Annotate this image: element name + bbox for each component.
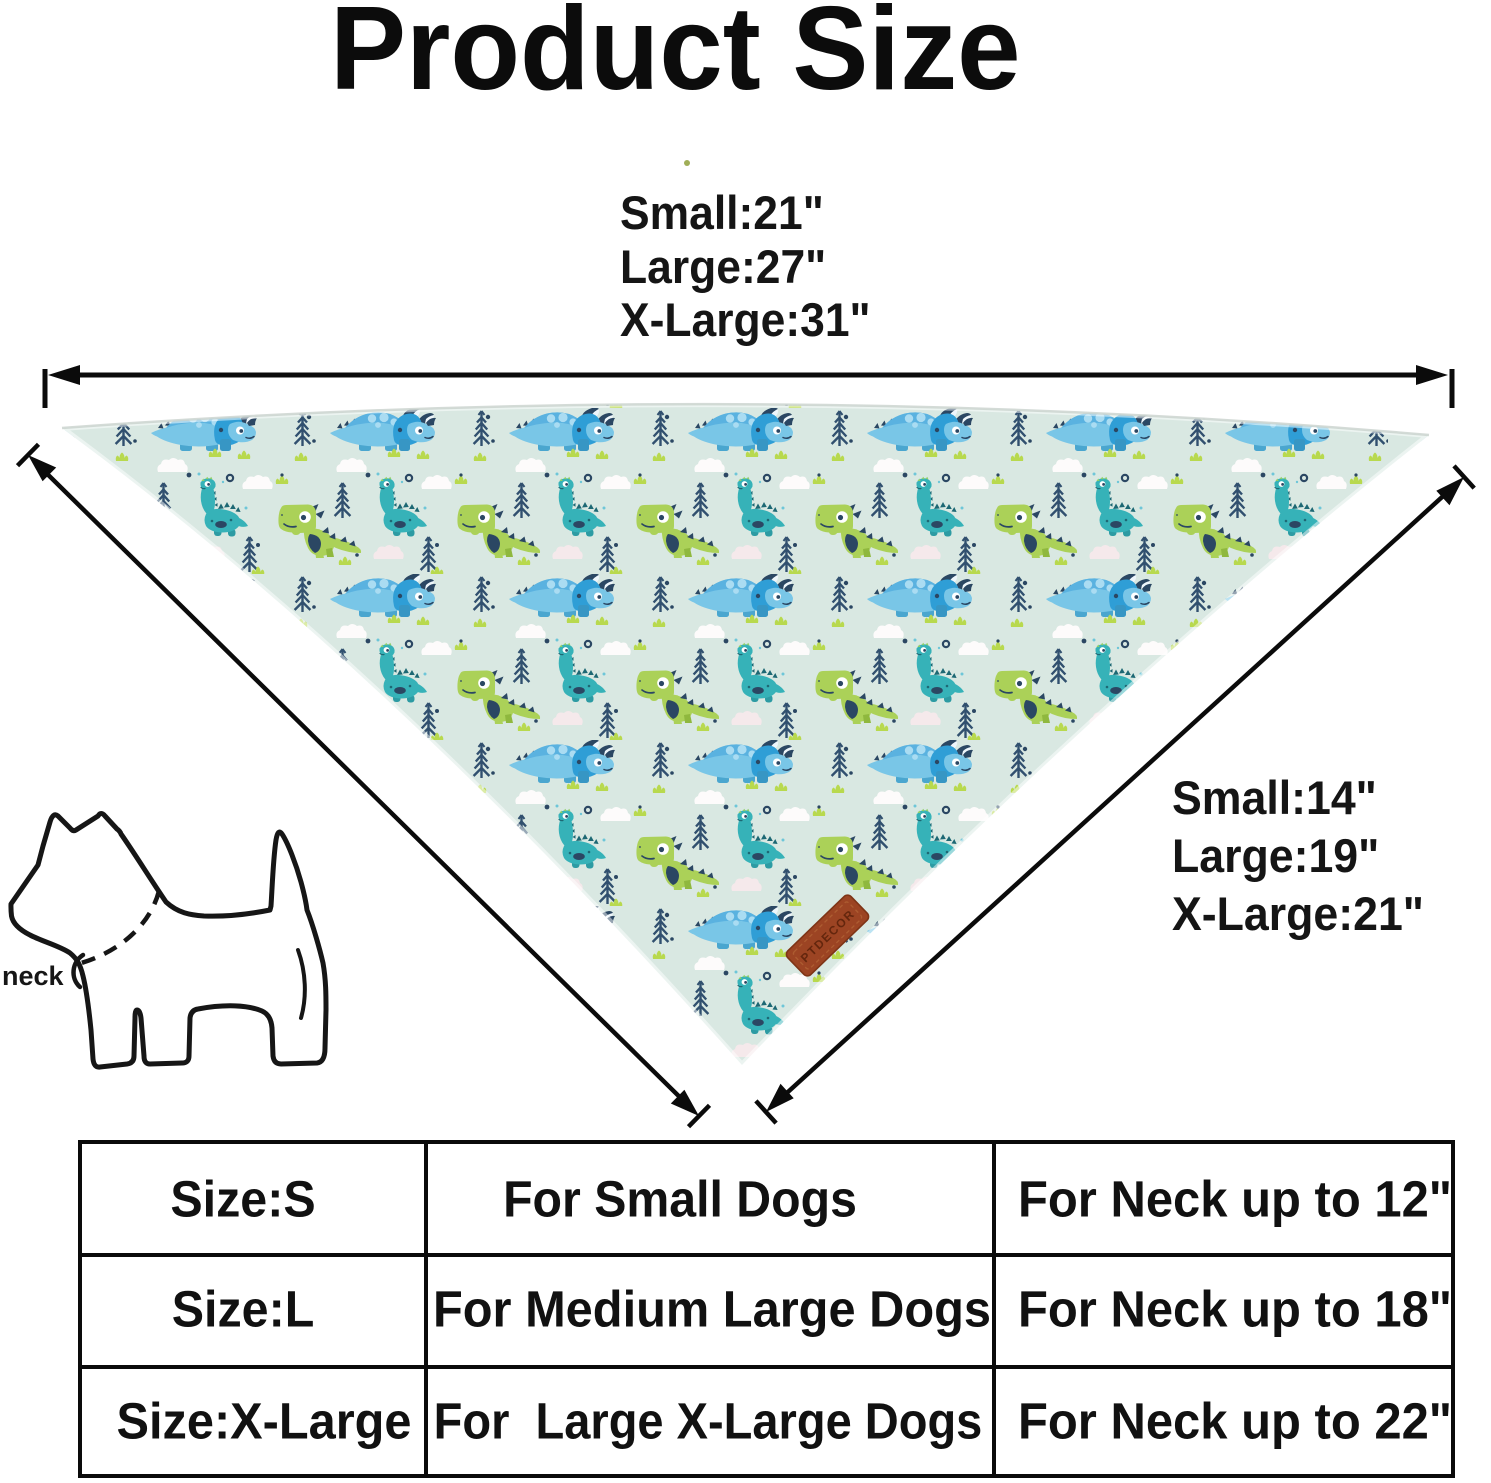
svg-text:neck: neck bbox=[2, 961, 65, 991]
